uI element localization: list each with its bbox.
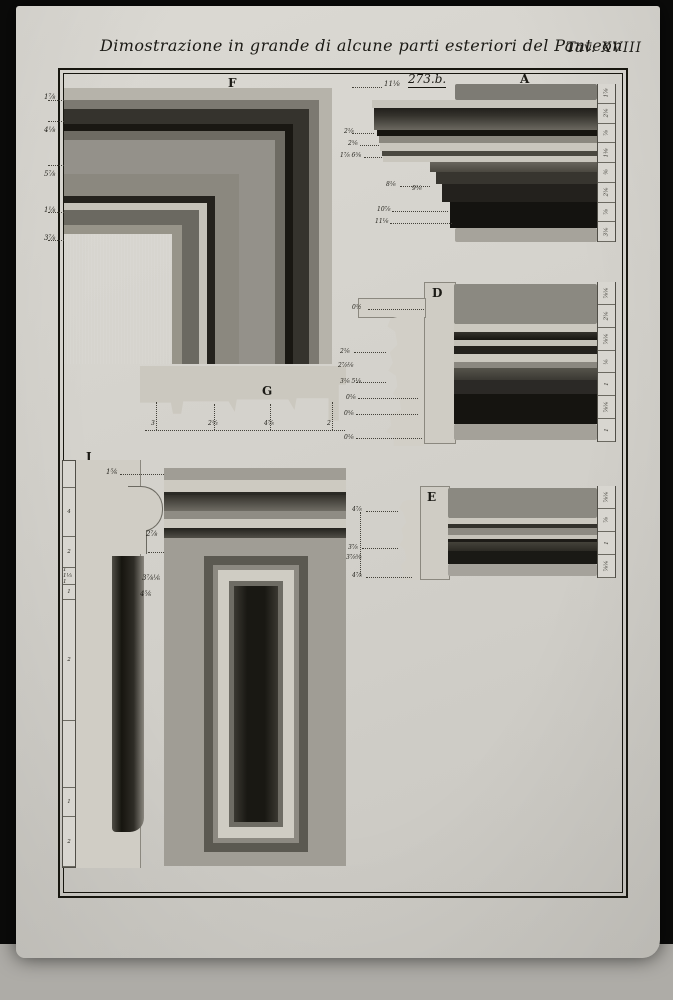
measure-cell: ⅞⅙ [598,282,615,305]
measure-label: 3⅞⅙ [142,574,160,582]
molding-band [379,136,597,143]
measure-cell: ⅚ [598,163,615,183]
leader-line [352,87,382,88]
leader-line [352,133,374,134]
molding-band [454,346,597,354]
scale-cell [63,721,75,788]
molding-band [164,480,346,492]
leader-line [366,511,398,512]
molding-band [374,108,597,130]
leader-line [362,548,398,549]
measure-label: 4⅞ [264,420,274,427]
molding-band [380,143,597,151]
measure-label: 2⅙ [340,348,350,355]
profile-bar [358,298,426,318]
measure-cell: 2⅙ [598,104,615,124]
measure-label: 4⅚ [140,590,151,598]
scale-cell [63,461,75,488]
scale-cell: 4 [63,488,75,537]
measure-cell: 2⅙ [598,305,615,328]
measure-label: 10⅞ [377,206,390,213]
molding-band [442,184,597,202]
molding-band [64,124,293,364]
leader-line [392,211,448,212]
panel-i-scale-column: 4 2 1 1⅓ 1 1 2 1 2 [62,460,76,868]
molding-band [448,542,597,551]
measure-label: 0⅚ [344,410,354,417]
molding-band [64,174,239,364]
leader-line [400,186,430,187]
leader-line [48,165,64,166]
molding-band [454,380,597,394]
leader-line [390,223,452,224]
leader-line [354,352,386,353]
molding-band [64,131,285,364]
plate-title: Dimostrazione in grande di alcune parti … [100,36,570,55]
measure-cell: 3⅙ [598,222,615,242]
etching-photo: Dimostrazione in grande di alcune parti … [0,0,673,1000]
plate-number: Tav. XVIII [566,40,642,56]
measure-label: 3⅞ [348,544,358,551]
measure-cell: 1⅞ [598,84,615,104]
molding-band [448,551,597,564]
molding-band [164,511,346,519]
molding-band [454,324,597,332]
measure-cell: ⅞⅙ [598,328,615,351]
scale-cell: 1 [63,788,75,817]
molding-band [448,564,597,576]
scale-cell: 2 [63,600,75,721]
molding-band [64,225,182,364]
molding-band [448,488,597,518]
measure-cell: ⅞⅙ [598,555,615,578]
leader-line [358,398,418,399]
molding-band [64,88,332,364]
leader-line [332,402,333,430]
molding-band [454,332,597,340]
scale-cell: 1 1⅓ 1 [63,568,75,585]
window-slot [234,586,278,822]
molding-band [64,100,319,364]
molding-band [454,394,597,424]
measure-label: 3 [151,420,155,427]
measure-label: 2⅞⅙ [338,362,353,369]
measure-label: 11⅙ [375,218,388,225]
molding-band [64,196,215,364]
leader-line [356,382,386,383]
panel-label-g: G [262,384,273,398]
molding-band [64,203,207,364]
measure-label: 8⅙ [386,181,396,188]
measure-cell: ⅞⅙ [598,486,615,509]
molding-band [436,172,597,184]
molding-band [164,528,346,538]
leader-line [356,438,422,439]
leader-line [48,100,64,101]
molding-band [448,528,597,535]
figure-note: 273.b. [408,72,446,88]
measure-line [145,430,345,431]
scale-cell: 2 [63,817,75,867]
measure-cell: 2⅙ [598,183,615,203]
measure-cell: ⅙ [598,351,615,374]
molding-band [455,84,597,100]
measure-cell: 1⅛ [598,143,615,163]
molding-band [454,354,597,362]
leader-line [360,512,361,576]
measure-label: 1⅚ [106,468,117,476]
leader-line [356,414,418,415]
molding-band [454,424,597,440]
molding-band [64,140,275,364]
measure-cell: ⅞ [598,124,615,144]
molding-band [455,228,597,242]
measure-label: 5⅞ [44,170,55,178]
leader-line [48,212,64,213]
window-frame-band [204,556,308,852]
scale-cell: 2 [63,537,75,568]
measure-label: 0⅙ [344,434,354,441]
molding-band [454,284,597,324]
measure-cell: 1 [598,419,615,442]
measure-label: 0⅙ [346,394,356,401]
measure-column: 1⅞ 2⅙ ⅞ 1⅛ ⅚ 2⅙ ⅞ 3⅙ [597,84,616,242]
leader-line [156,402,157,430]
measure-label: 11⅛ [384,80,400,88]
molding-band [450,202,597,228]
measure-label: 4⅛ [44,126,55,134]
measure-cell: ⅞ [598,203,615,223]
measure-cell: ⅞⅙ [598,396,615,419]
panel-label-e: E [427,490,437,504]
molding-band [164,495,346,511]
panel-label-d: D [432,286,443,300]
leader-line [366,577,412,578]
leader-line [48,121,64,122]
molding-band [372,100,597,108]
window-frame-band [213,565,299,843]
leader-line [364,157,382,158]
measure-label: 2⅓ [208,420,218,427]
measure-label: 1⅞ 6⅚ [340,152,361,159]
window-frame-band [218,570,294,838]
molding-band [64,109,309,364]
measure-cell: 1 [598,532,615,555]
leader-line [368,309,424,310]
measure-cell: ⅞ [598,509,615,532]
measure-column: ⅞⅙ ⅞ 1 ⅞⅙ [597,486,616,578]
measure-label: 2⅚ [348,140,358,147]
molding-band [430,162,597,172]
panel-h-recess: L M 10⅞ 1⅚ 4½ 2 Palmi Romani Cav. France… [204,556,308,852]
leader-line [120,474,164,475]
measure-column: ⅞⅙ 2⅙ ⅞⅙ ⅙ 1 ⅞⅙ 1 [597,282,616,442]
panel-i-step [128,530,147,554]
measure-label: 2 [327,420,331,427]
measure-label: 0½ [352,304,362,311]
molding-band [64,210,199,364]
panel-d-pier [424,282,456,444]
molding-band [454,368,597,380]
molding-band [164,519,346,528]
scale-cell: 1 [63,585,75,600]
measure-cell: 1 [598,373,615,396]
panel-f-corner-molding [64,88,332,364]
leader-line [48,240,64,241]
window-frame-band [229,581,283,827]
measure-label: 2⅞ [146,530,157,538]
leader-line [360,145,379,146]
